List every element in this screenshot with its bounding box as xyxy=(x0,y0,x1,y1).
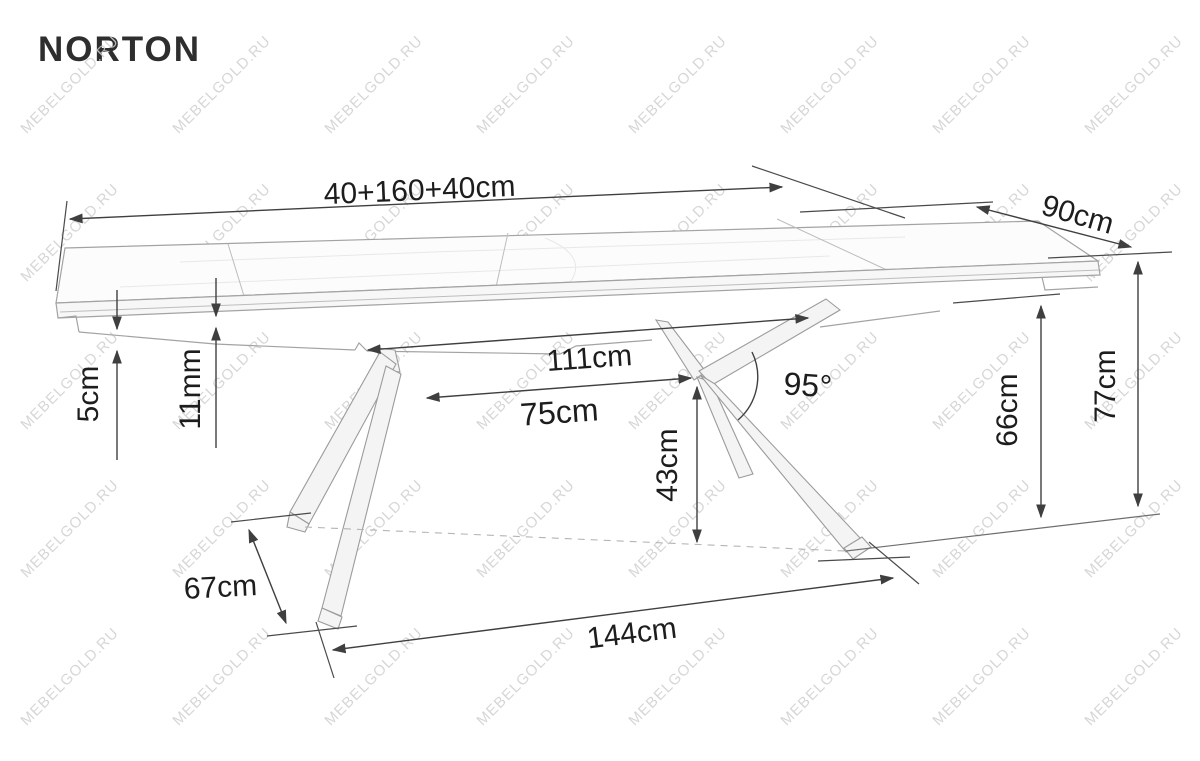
dim-label-underframe-length: 111cm xyxy=(545,339,633,378)
left-leg xyxy=(287,348,401,629)
extension-line xyxy=(316,622,334,678)
watermark-text: MEBELGOLD.RU xyxy=(169,624,274,729)
watermark-text: MEBELGOLD.RU xyxy=(929,32,1034,137)
watermark-text: MEBELGOLD.RU xyxy=(1081,476,1186,581)
watermark-text: MEBELGOLD.RU xyxy=(473,624,578,729)
right-leg-front-strut xyxy=(700,375,862,552)
watermark-text: MEBELGOLD.RU xyxy=(473,476,578,581)
apron-notch-left xyxy=(355,343,367,351)
dim-label-under-clearance: 43cm xyxy=(651,428,684,501)
dim-label-total-length: 40+160+40cm xyxy=(323,170,516,211)
extension-line xyxy=(869,542,919,584)
watermark-text: MEBELGOLD.RU xyxy=(17,476,122,581)
watermark-text: MEBELGOLD.RU xyxy=(321,32,426,137)
watermark-text: MEBELGOLD.RU xyxy=(625,32,730,137)
floor-dashed-line xyxy=(305,527,845,551)
watermark-text: MEBELGOLD.RU xyxy=(929,476,1034,581)
watermark-text: MEBELGOLD.RU xyxy=(169,476,274,581)
watermark-text: MEBELGOLD.RU xyxy=(17,624,122,729)
watermark-text: MEBELGOLD.RU xyxy=(777,32,882,137)
table-dimension-diagram: MEBELGOLD.RUMEBELGOLD.RUMEBELGOLD.RUMEBE… xyxy=(0,0,1200,761)
dim-label-top-thickness: 5cm xyxy=(72,366,105,423)
watermark-text: MEBELGOLD.RU xyxy=(169,32,274,137)
diagram-page: NORTON MEBELGOLD.RUMEBELGOLD.RUMEBELGOLD… xyxy=(0,0,1200,761)
watermark-text: MEBELGOLD.RU xyxy=(473,32,578,137)
watermark-text: MEBELGOLD.RU xyxy=(777,624,882,729)
dim-label-leg-angle: 95° xyxy=(782,365,833,404)
watermark-text: MEBELGOLD.RU xyxy=(17,328,122,433)
dim-label-leg-top-span: 75cm xyxy=(519,391,600,432)
dim-label-leaf-step: 11mm xyxy=(174,348,207,429)
dim-label-apron-height: 66cm xyxy=(991,373,1024,446)
floor-reference-lines xyxy=(305,514,1160,561)
extension-line xyxy=(267,626,357,636)
watermark-text: MEBELGOLD.RU xyxy=(929,624,1034,729)
dim-label-foot-depth: 67cm xyxy=(183,569,258,606)
extension-line xyxy=(800,202,993,212)
apron-right-line xyxy=(820,311,940,327)
dim-label-table-height: 77cm xyxy=(1089,349,1122,422)
dimension-foot-span: 144cm xyxy=(316,542,919,678)
dim-label-foot-span: 144cm xyxy=(585,612,678,656)
watermark-text: MEBELGOLD.RU xyxy=(1081,624,1186,729)
extension-line xyxy=(953,294,1060,303)
floor-short-line xyxy=(818,557,910,561)
dimension-leg-angle: 95° xyxy=(738,352,833,420)
watermark-text: MEBELGOLD.RU xyxy=(17,32,122,137)
watermark-text: MEBELGOLD.RU xyxy=(1081,32,1186,137)
